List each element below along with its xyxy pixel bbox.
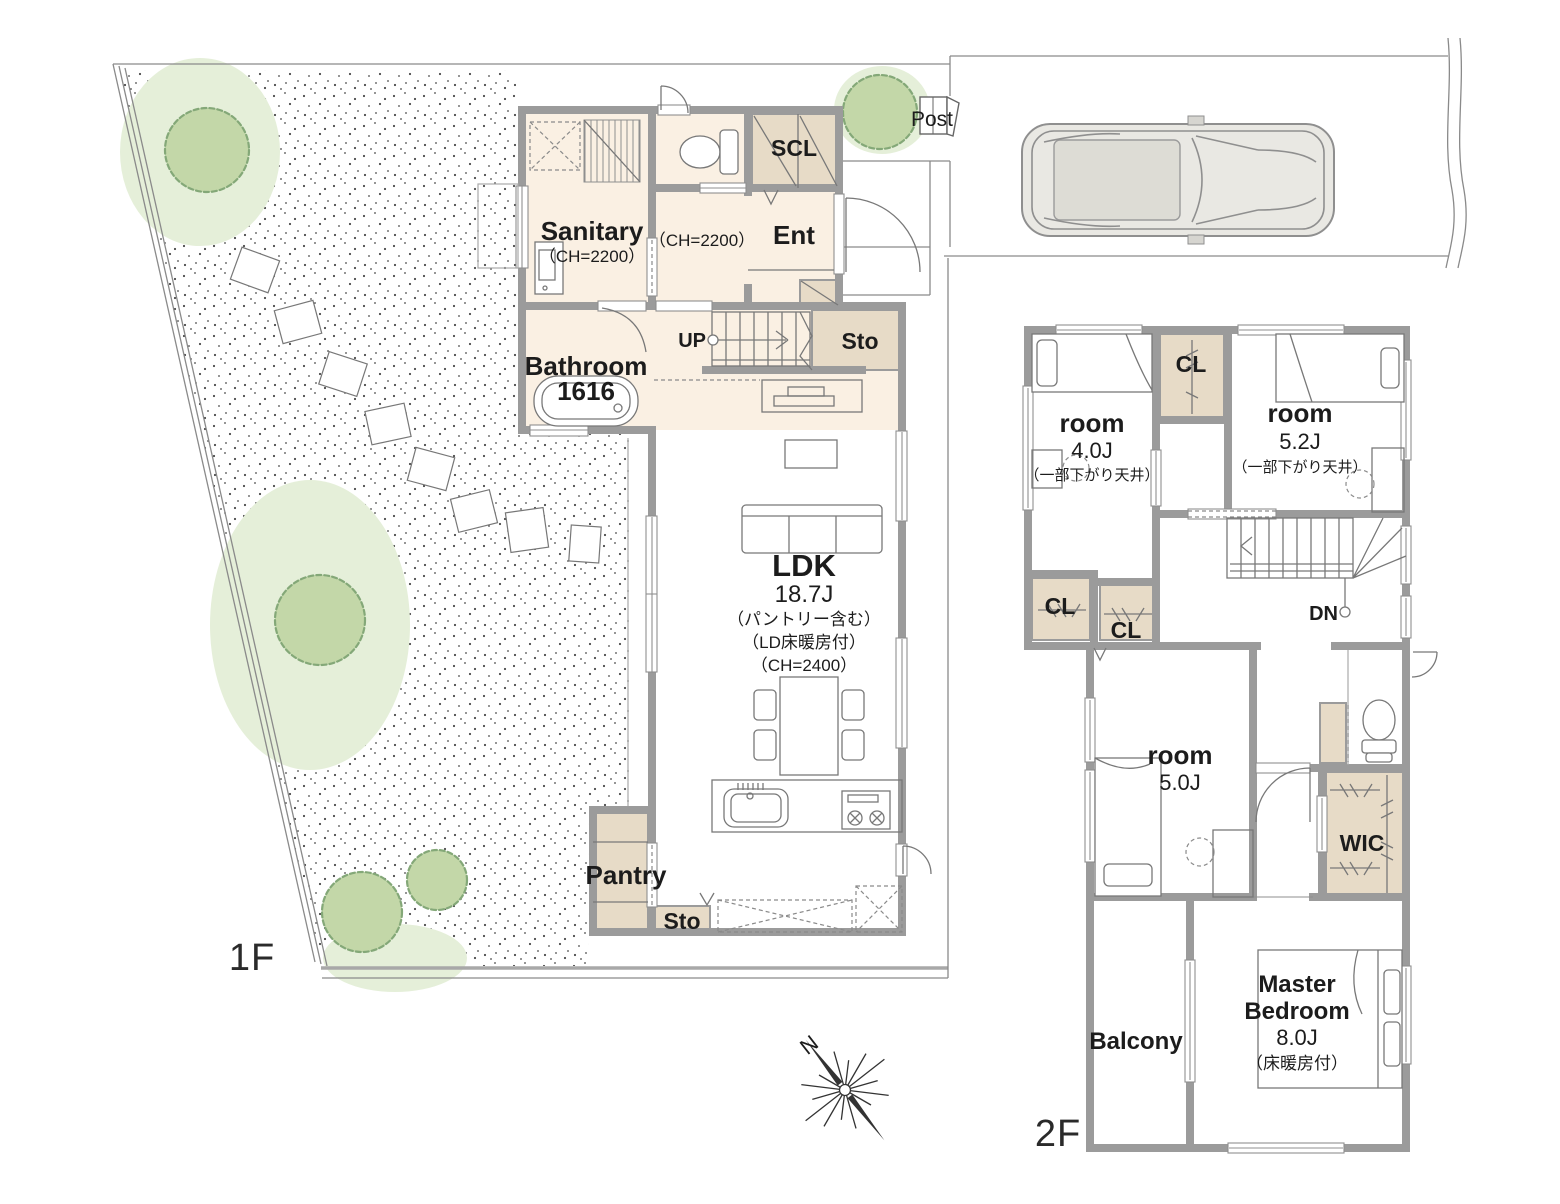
ldk-note1: （パントリー含む）: [727, 610, 881, 629]
bathroom-size: 1616: [557, 376, 615, 406]
sofa-icon: [742, 505, 882, 553]
cabinet: [785, 440, 837, 468]
ldk-note2: （LD床暖房付）: [742, 633, 866, 652]
master-label-1: Master: [1258, 971, 1335, 998]
hall-door-arc: [1256, 768, 1310, 822]
sanitary-note: （CH=2200）: [539, 247, 645, 266]
room2-size: 5.2J: [1279, 429, 1321, 454]
balcony-label: Balcony: [1089, 1028, 1183, 1055]
tree-icon: [322, 872, 402, 952]
toilet-icon: [1362, 700, 1396, 762]
kitchen-counter: [712, 780, 902, 832]
sto-kitchen-label: Sto: [663, 908, 700, 934]
stairs-down-label: DN: [1309, 603, 1338, 625]
scl-label: SCL: [771, 135, 817, 161]
toilet-icon: [680, 136, 720, 168]
floorplan-page: Post 1F 2F N: [0, 0, 1560, 1204]
door-stop-mark: [700, 893, 714, 905]
pantry-label: Pantry: [586, 860, 667, 890]
room1-label: room: [1060, 408, 1125, 438]
room1-size: 4.0J: [1071, 438, 1113, 463]
ldk-size: 18.7J: [775, 581, 834, 608]
stove-icon: [842, 791, 890, 829]
room2-label: room: [1268, 398, 1333, 428]
tree-icon: [407, 850, 467, 910]
hall-ch-note: （CH=2200）: [649, 231, 755, 250]
floorplan-canvas: Post 1F 2F N: [0, 0, 1560, 1204]
sink-icon: [724, 789, 788, 827]
car-icon: [1022, 116, 1334, 244]
cl-a-label: CL: [1045, 593, 1076, 619]
tree-icon: [843, 75, 917, 149]
stairs-up-label: UP: [678, 330, 706, 352]
bed-icon: [1032, 334, 1152, 392]
room2-note: （一部下がり天井）: [1232, 459, 1367, 476]
road-edge: [1458, 38, 1466, 268]
room1-note: （一部下がり天井）: [1024, 467, 1159, 484]
master-size: 8.0J: [1276, 1025, 1318, 1050]
desk-icon: [1372, 448, 1404, 512]
ent-label: Ent: [773, 220, 815, 250]
floor1-label: 1F: [229, 937, 275, 979]
cl-top-label: CL: [1176, 351, 1207, 377]
cl-b-label: CL: [1111, 617, 1142, 643]
sto-stairs-label: Sto: [841, 328, 878, 354]
toilet-cabinet: [1320, 703, 1346, 763]
dining-table-icon: [754, 677, 864, 775]
compass-icon: [766, 1009, 924, 1171]
post-label: Post: [911, 108, 953, 131]
ldk-label: LDK: [772, 548, 836, 583]
desk-icon: [1213, 830, 1253, 897]
room3-label: room: [1148, 740, 1213, 770]
road-edge: [1446, 38, 1454, 268]
wic-label: WIC: [1340, 830, 1385, 856]
floor2-label: 2F: [1035, 1113, 1081, 1155]
ldk-note3: （CH=2400）: [751, 656, 857, 675]
bed-icon: [1276, 334, 1404, 402]
under-counter-storage: [718, 900, 852, 932]
master-note: （床暖房付）: [1246, 1054, 1348, 1073]
room3-size: 5.0J: [1159, 770, 1201, 795]
tree-icon: [165, 108, 249, 192]
floor2-plan: room 4.0J （一部下がり天井） CL room 5.2J （一部下がり天…: [1023, 325, 1437, 1153]
master-label-2: Bedroom: [1244, 998, 1349, 1025]
sanitary-label: Sanitary: [541, 216, 644, 246]
tree-icon: [275, 575, 365, 665]
bed-icon: [1095, 758, 1161, 896]
toilet-door-arc: [1412, 652, 1437, 677]
entrance-door-arc: [846, 198, 920, 272]
chair-icon: [1186, 838, 1214, 866]
